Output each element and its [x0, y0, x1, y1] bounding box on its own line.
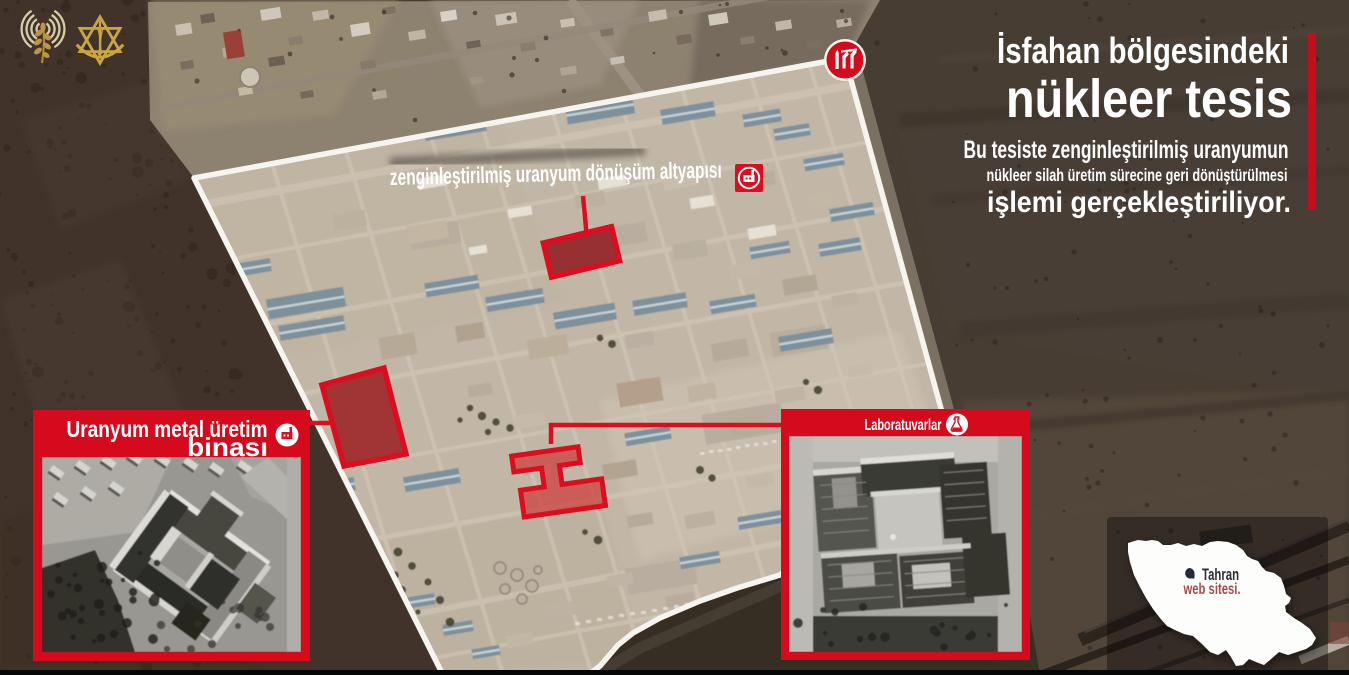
svg-text:nükleer tesis: nükleer tesis	[1006, 69, 1292, 129]
svg-text:Bu tesiste zenginleştirilmiş u: Bu tesiste zenginleştirilmiş uranyumun	[964, 136, 1289, 164]
svg-text:nükleer silah üretim sürecine: nükleer silah üretim sürecine geri dönüş…	[987, 165, 1288, 185]
svg-text:Laboratuvarlar: Laboratuvarlar	[865, 417, 942, 434]
svg-text:işlemi gerçekleştiriliyor.: işlemi gerçekleştiriliyor.	[987, 186, 1291, 219]
svg-text:web sitesi.: web sitesi.	[1183, 581, 1241, 598]
svg-text:binası: binası	[187, 432, 268, 462]
svg-text:İsfahan bölgesindeki: İsfahan bölgesindeki	[997, 30, 1289, 71]
